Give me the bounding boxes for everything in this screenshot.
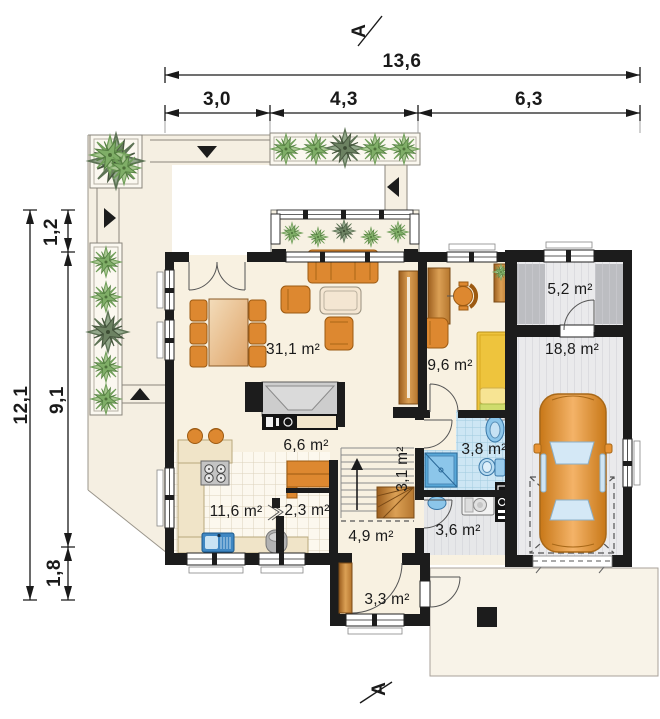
- room-label-living: 31,1 m²: [266, 341, 320, 359]
- room-label-corridor: 4,9 m²: [348, 528, 393, 546]
- section-marker-top: A: [349, 24, 371, 38]
- vestibule-door-leaf: [339, 563, 352, 613]
- room-label-bathroom: 3,8 m²: [461, 441, 506, 459]
- counter-top: [178, 440, 232, 463]
- car-mirror: [534, 444, 541, 453]
- utility-basin: [428, 497, 446, 510]
- room-label-hall: 6,6 m²: [283, 437, 328, 455]
- dim-top-total: 13,6: [383, 51, 422, 73]
- toilet: [479, 459, 505, 477]
- room-label-vestibule: 3,3 m²: [364, 591, 409, 609]
- bay-window: [271, 210, 419, 252]
- dim-left-seg3: 1,8: [44, 559, 66, 587]
- dim-left-seg1: 1,2: [41, 218, 63, 246]
- island-unit: [262, 382, 338, 430]
- dim-top-seg2: 4,3: [330, 89, 358, 111]
- dim-left-total: 12,1: [11, 386, 33, 425]
- washing-machine: [462, 495, 494, 515]
- floor-plan-canvas: 13,6 3,0 4,3 6,3 12,1 1,2 9,1 1,8 A A 31…: [0, 0, 660, 719]
- room-label-stairs: 3,1 m²: [394, 446, 412, 491]
- shower: [425, 453, 457, 487]
- room-label-storage: 5,2 m²: [547, 281, 592, 299]
- armchair: [281, 286, 310, 313]
- room-label-pantry: 2,3 m²: [284, 502, 329, 520]
- car-mirror: [605, 444, 612, 453]
- dim-top-seg1: 3,0: [203, 89, 231, 111]
- porch: [430, 561, 658, 676]
- kitchen-sink: [202, 533, 234, 552]
- porch-column: [477, 607, 497, 627]
- dim-top-seg3: 6,3: [515, 89, 543, 111]
- section-marker-bottom: A: [369, 682, 391, 696]
- room-label-kitchen: 11,6 m²: [210, 503, 263, 521]
- room-label-study: 9,6 m²: [427, 357, 472, 375]
- stove: [201, 461, 229, 485]
- desk: [428, 268, 450, 324]
- dim-left-seg2: 9,1: [47, 386, 69, 414]
- dining-table: [209, 299, 248, 366]
- car: [534, 394, 612, 552]
- room-label-garage: 18,8 m²: [545, 341, 599, 359]
- dining-set: [190, 299, 266, 367]
- bed: [477, 332, 509, 412]
- counter-bottom: [178, 537, 308, 553]
- room-label-utility: 3,6 m²: [435, 522, 480, 540]
